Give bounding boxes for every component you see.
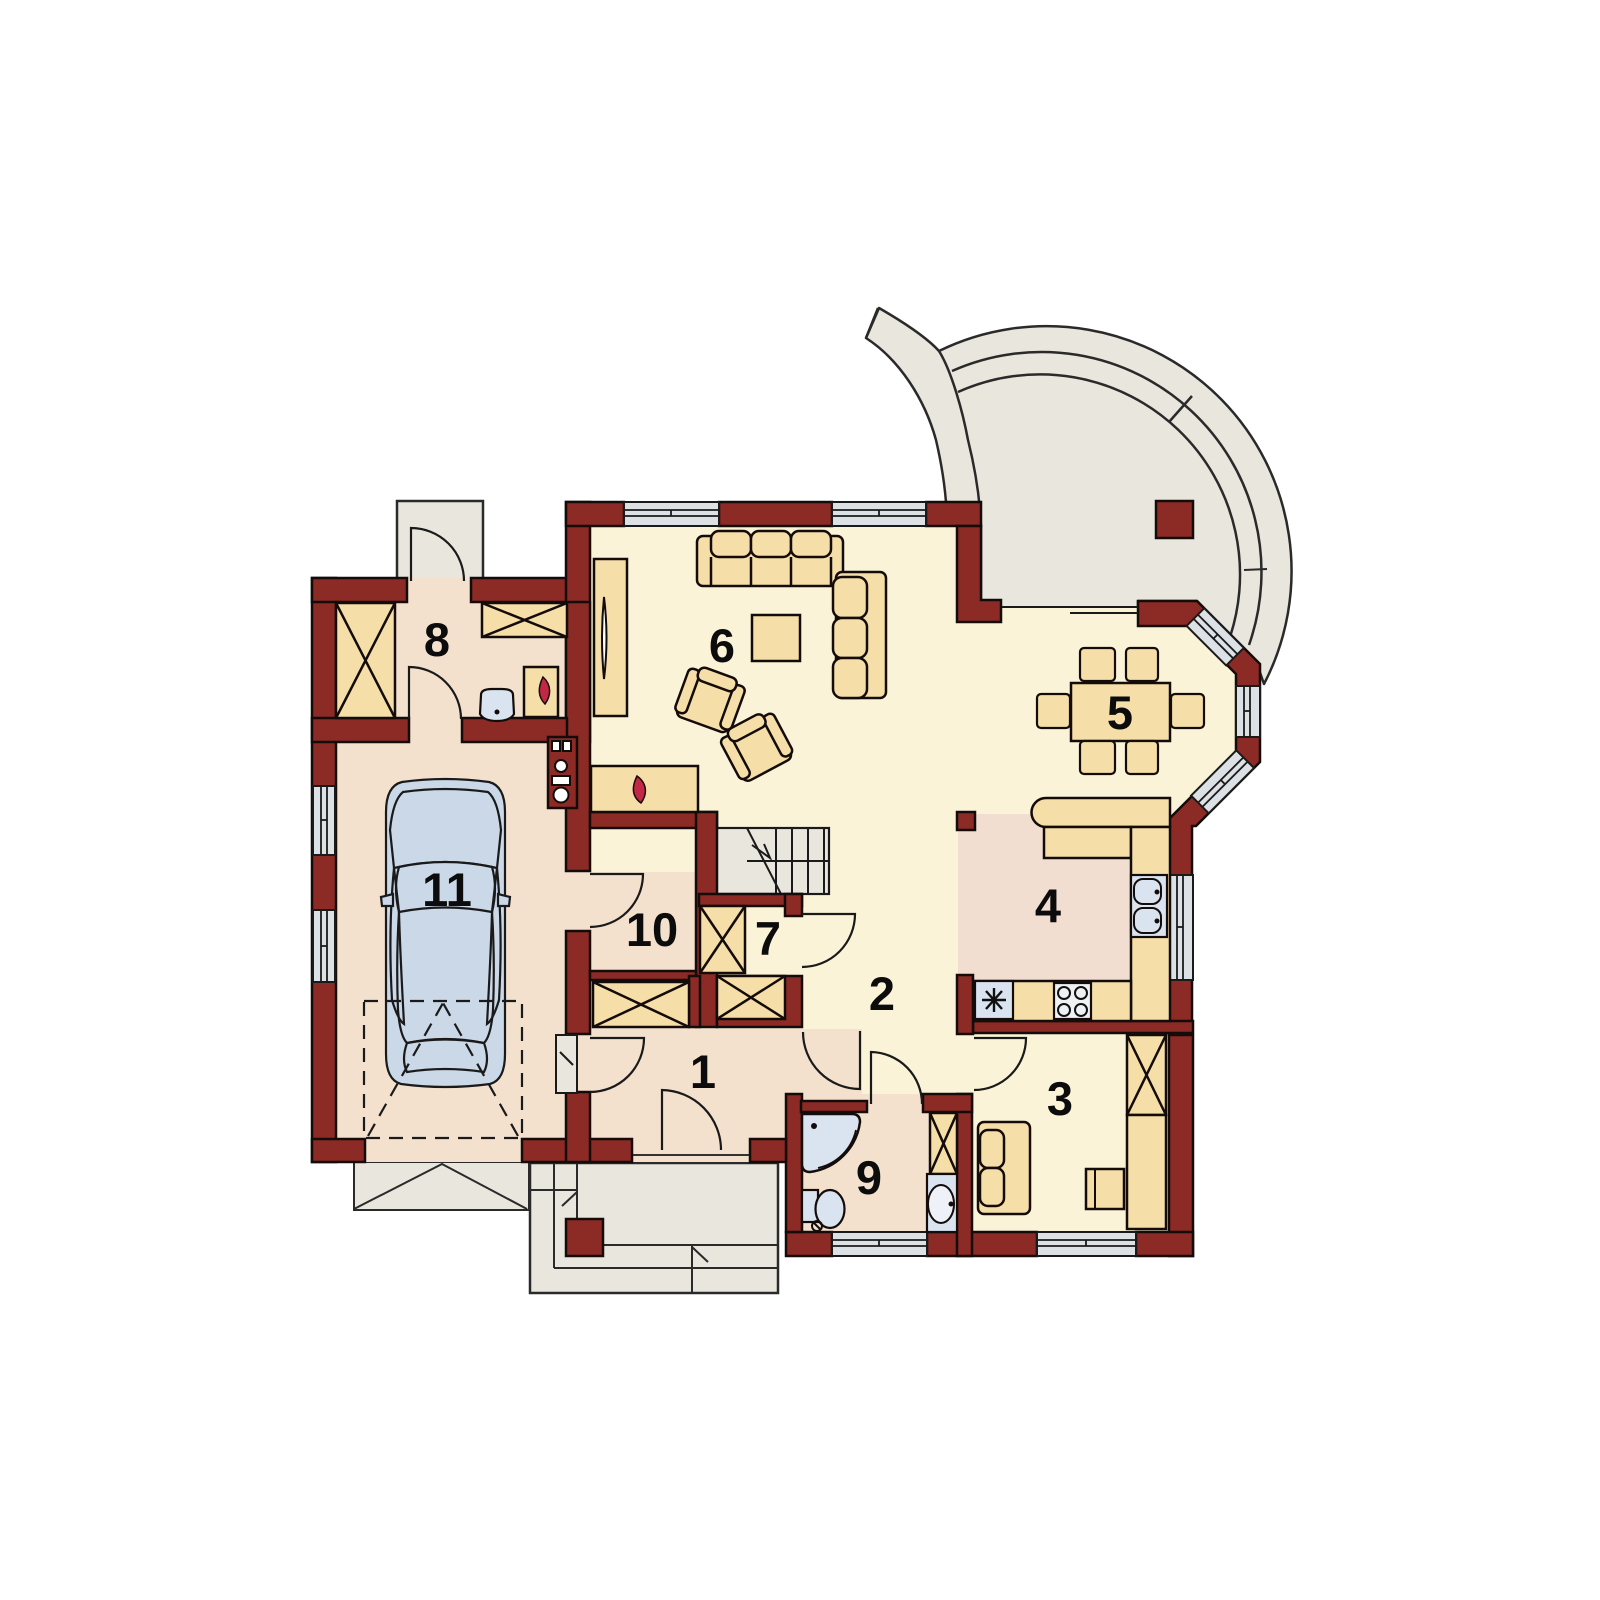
svg-text:1: 1: [690, 1045, 716, 1098]
svg-text:5: 5: [1107, 686, 1133, 739]
svg-text:7: 7: [755, 912, 781, 965]
svg-text:9: 9: [856, 1151, 882, 1204]
svg-text:11: 11: [422, 863, 472, 916]
svg-text:10: 10: [626, 903, 678, 956]
svg-text:6: 6: [709, 619, 735, 672]
svg-text:2: 2: [869, 967, 895, 1020]
svg-text:3: 3: [1047, 1072, 1073, 1125]
svg-text:8: 8: [424, 613, 450, 666]
svg-text:4: 4: [1035, 879, 1061, 932]
